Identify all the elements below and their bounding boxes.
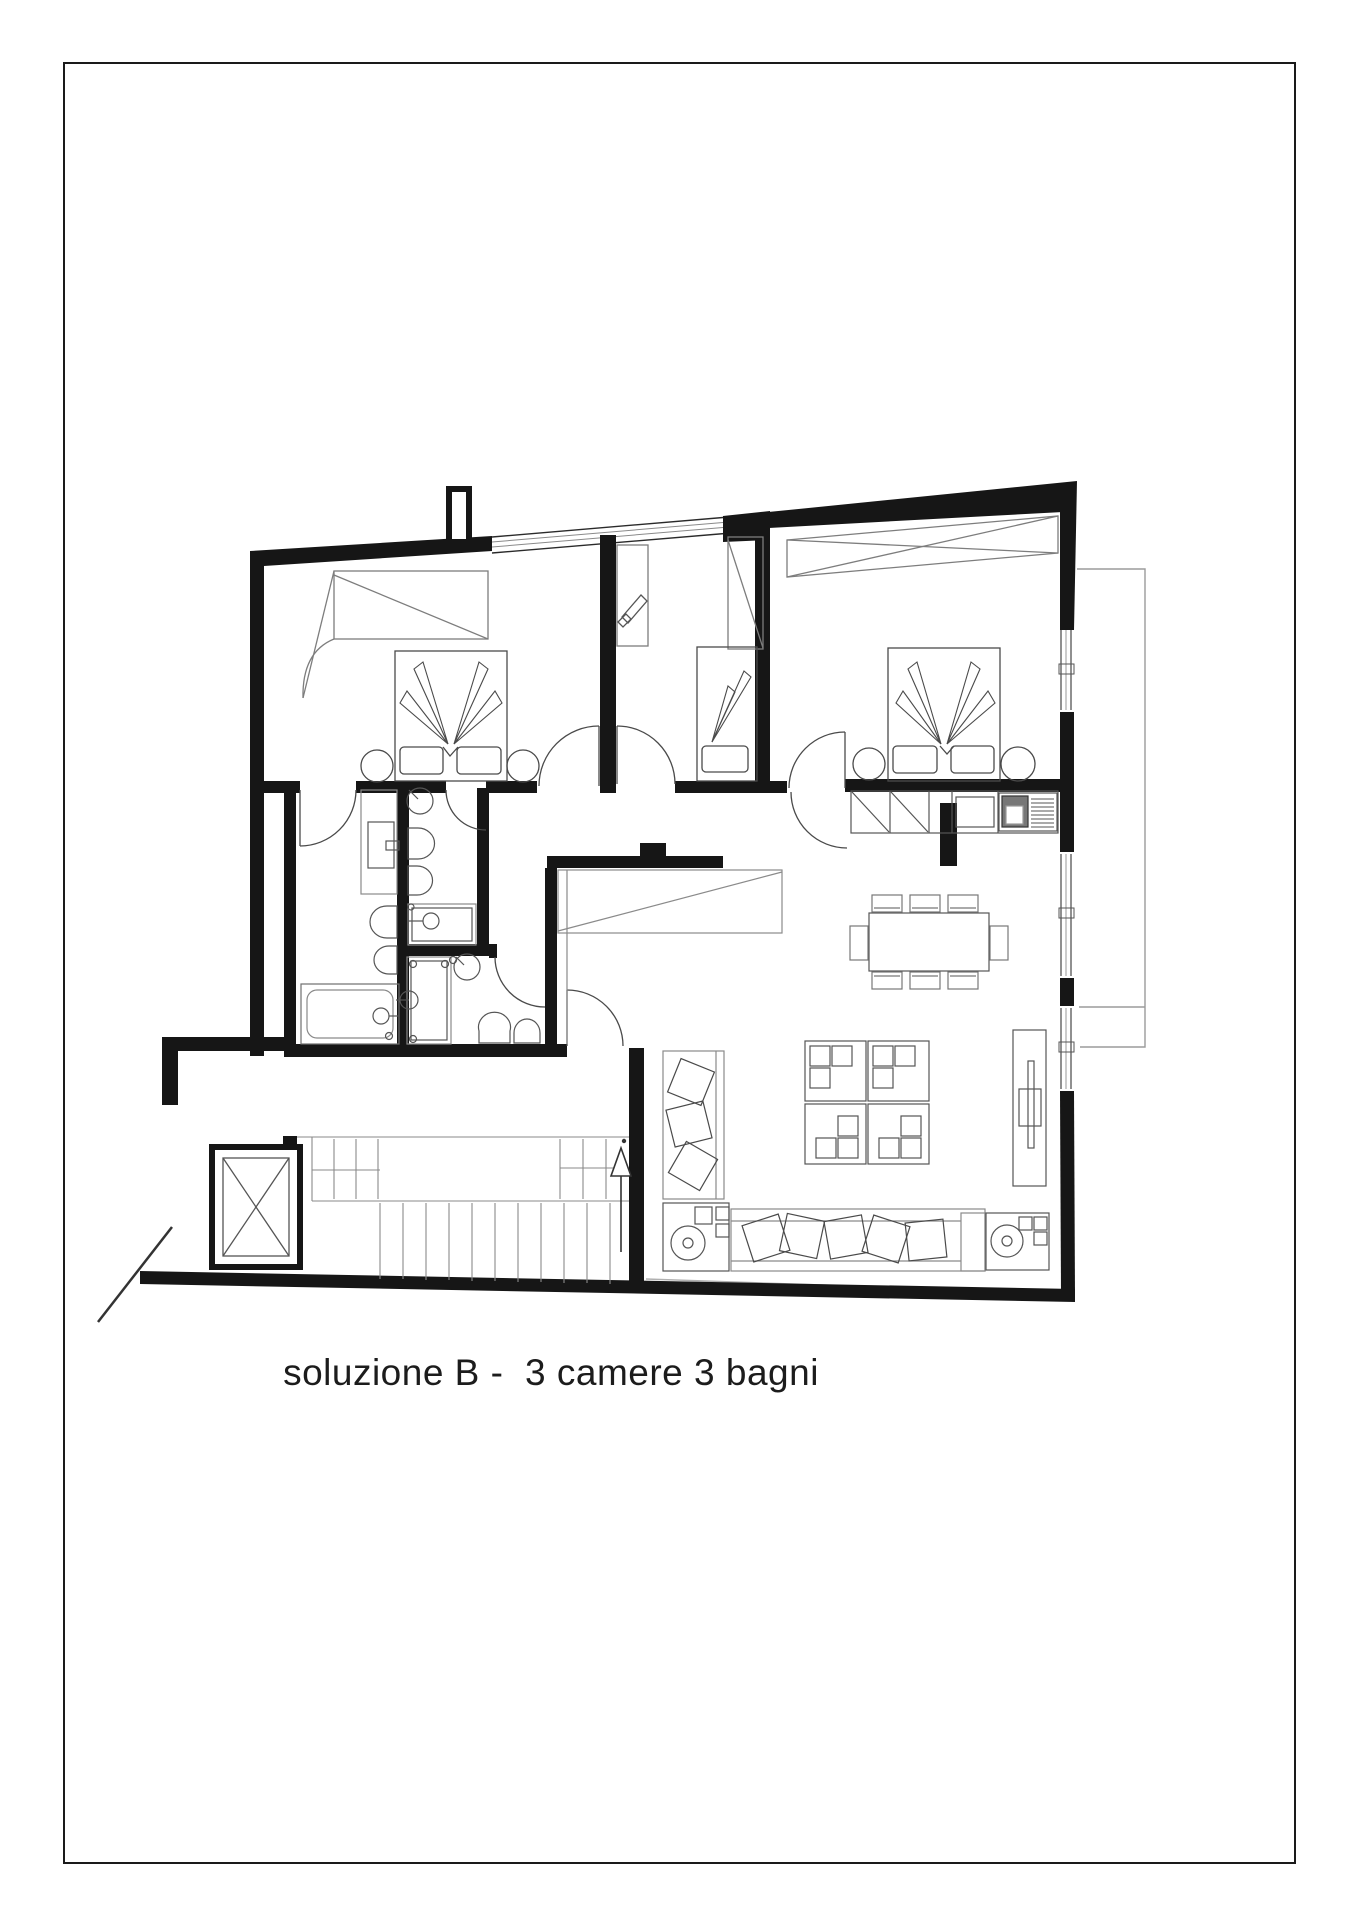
dining-chairs bbox=[850, 895, 1008, 989]
corner-sink bbox=[450, 954, 481, 980]
double-bed bbox=[395, 651, 507, 781]
interior-walls bbox=[264, 511, 1062, 1048]
sink bbox=[956, 797, 994, 827]
nightstand bbox=[1001, 747, 1035, 781]
bedroom-3 bbox=[787, 516, 1058, 781]
bidet bbox=[514, 1019, 540, 1043]
window-living bbox=[1059, 1008, 1074, 1089]
desk bbox=[617, 545, 648, 646]
toilet bbox=[408, 828, 435, 859]
hall-closet bbox=[558, 870, 782, 1044]
elevator bbox=[212, 1147, 300, 1267]
window-kitchen bbox=[1059, 854, 1074, 976]
nightstand bbox=[507, 750, 539, 782]
stair-direction-arrow bbox=[611, 1139, 631, 1252]
bidet bbox=[408, 866, 433, 895]
bathtub bbox=[301, 984, 399, 1044]
single-bed bbox=[697, 647, 757, 781]
dining-table bbox=[869, 913, 989, 971]
sofa bbox=[731, 1209, 985, 1271]
nightstand bbox=[853, 748, 885, 780]
armchairs bbox=[805, 1041, 929, 1164]
window-bedroom3 bbox=[1059, 630, 1074, 710]
speaker-left bbox=[663, 1203, 729, 1271]
bathroom-2 bbox=[407, 788, 476, 945]
toilet bbox=[370, 906, 397, 938]
bathroom-1 bbox=[301, 790, 399, 1044]
bedroom-2 bbox=[617, 537, 763, 781]
speaker-right bbox=[986, 1213, 1049, 1270]
cooktop bbox=[999, 793, 1057, 831]
bedroom1-door bbox=[539, 726, 599, 786]
entrance-door bbox=[567, 990, 623, 1046]
bathroom3-door bbox=[495, 957, 545, 1007]
dining-set bbox=[850, 895, 1008, 989]
bidet bbox=[374, 946, 397, 974]
hall-living-door bbox=[791, 792, 847, 848]
vanity bbox=[361, 790, 397, 894]
bedroom-1 bbox=[303, 571, 539, 782]
shower-tray bbox=[408, 904, 476, 945]
nightstand bbox=[361, 750, 393, 782]
cushions bbox=[666, 1059, 718, 1191]
double-bed bbox=[888, 648, 1000, 781]
drawing-sheet: soluzione B - 3 camere 3 bagni bbox=[0, 0, 1357, 1920]
plan-title: soluzione B - 3 camere 3 bagni bbox=[251, 1352, 851, 1404]
toilet bbox=[479, 1012, 511, 1043]
tv-panel bbox=[1013, 1030, 1046, 1186]
desk-object bbox=[618, 595, 647, 627]
right-wall-windows bbox=[1059, 630, 1074, 1089]
bedroom2-door bbox=[617, 726, 675, 784]
chaise-longue bbox=[663, 1051, 724, 1199]
bedroom3-door bbox=[789, 732, 845, 788]
bathroom1-door bbox=[300, 790, 356, 846]
staircase bbox=[297, 1137, 629, 1284]
chimney-stub bbox=[449, 489, 469, 542]
wardrobe bbox=[787, 516, 1058, 577]
floor-plan bbox=[0, 0, 1357, 1920]
